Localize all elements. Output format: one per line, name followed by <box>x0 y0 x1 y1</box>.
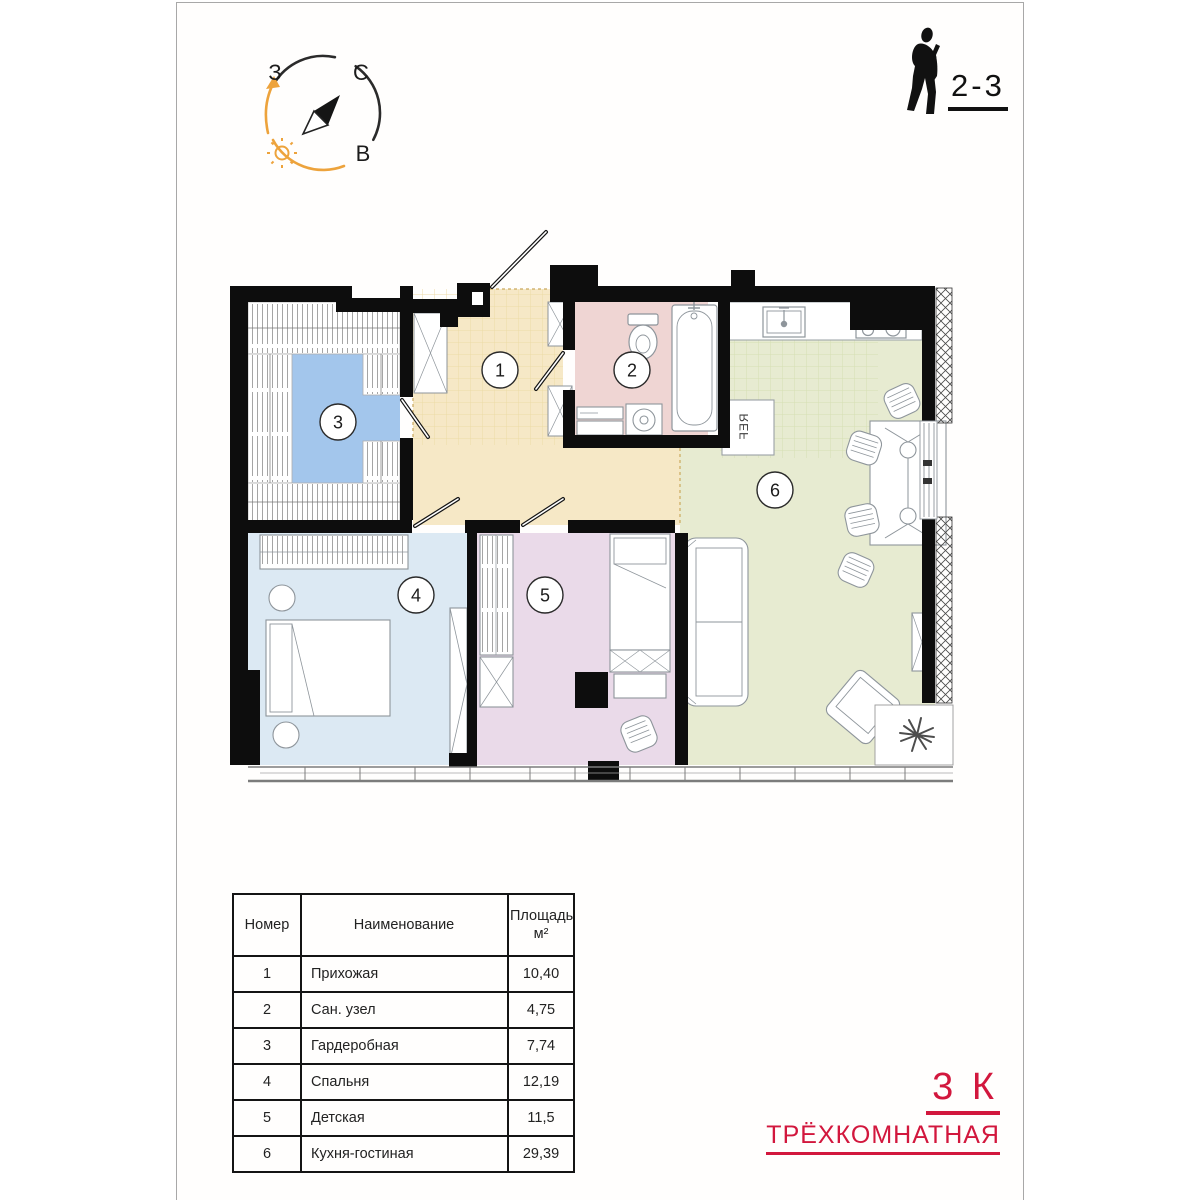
room-number-2: 2 <box>627 361 637 381</box>
compass-rose-icon: З С В <box>240 35 410 205</box>
floors-badge: 2-3 <box>948 68 1008 111</box>
cell-name: Детская <box>301 1100 508 1136</box>
cell-area: 7,74 <box>508 1028 574 1064</box>
cell-area: 12,19 <box>508 1064 574 1100</box>
cell-area: 11,5 <box>508 1100 574 1136</box>
room-number-4: 4 <box>411 586 421 606</box>
rooms-table: Номер Наименование Площадь, м² 1 Прихожа… <box>232 893 575 1173</box>
room-number-3: 3 <box>333 413 343 433</box>
nightstand <box>273 722 299 748</box>
apartment-type: 3 К ТРЁХКОМНАТНАЯ <box>766 1066 1000 1155</box>
room-number-5: 5 <box>540 586 550 606</box>
cell-area: 4,75 <box>508 992 574 1028</box>
cell-area: 29,39 <box>508 1136 574 1172</box>
floorplan-drawing: REF <box>230 225 975 795</box>
bedroom-wardrobe <box>450 608 467 760</box>
washing-machine-icon <box>577 404 662 435</box>
apartment-type-short: 3 К <box>926 1066 1000 1115</box>
header-area-line1: Площадь, <box>510 908 574 924</box>
cell-number: 6 <box>233 1136 301 1172</box>
cell-number: 3 <box>233 1028 301 1064</box>
cell-name: Кухня-гостиная <box>301 1136 508 1172</box>
cell-number: 1 <box>233 956 301 992</box>
table-row: 3 Гардеробная 7,74 <box>233 1028 574 1064</box>
sofa-icon <box>684 538 748 706</box>
bed-double-icon <box>266 620 390 716</box>
table-row: 4 Спальня 12,19 <box>233 1064 574 1100</box>
compass-label-west: З <box>268 60 281 85</box>
cell-number: 5 <box>233 1100 301 1136</box>
table-row: 5 Детская 11,5 <box>233 1100 574 1136</box>
fridge-label: REF <box>737 414 751 441</box>
balcony-corner <box>875 705 953 765</box>
compass-arc-sun <box>273 140 344 170</box>
apartment-type-full: ТРЁХКОМНАТНАЯ <box>766 1121 1000 1155</box>
cell-number: 4 <box>233 1064 301 1100</box>
cell-name: Сан. узел <box>301 992 508 1028</box>
table-row: 1 Прихожая 10,40 <box>233 956 574 992</box>
cell-name: Гардеробная <box>301 1028 508 1064</box>
person-icon <box>903 26 949 118</box>
room-number-6: 6 <box>770 481 780 501</box>
table-row: 6 Кухня-гостиная 29,39 <box>233 1136 574 1172</box>
compass-label-east: В <box>356 141 371 166</box>
kitchen-sink-icon <box>763 307 805 337</box>
header-area-line2: м² <box>534 926 549 942</box>
header-name: Наименование <box>301 894 508 956</box>
header-area: Площадь, м² <box>508 894 574 956</box>
cell-number: 2 <box>233 992 301 1028</box>
wall-notch <box>472 292 483 305</box>
cell-name: Прихожая <box>301 956 508 992</box>
window-right <box>920 421 937 519</box>
bathtub-icon <box>672 302 717 431</box>
floorplan-page: З С В 2-3 <box>0 0 1200 1200</box>
cell-name: Спальня <box>301 1064 508 1100</box>
table-row: 2 Сан. узел 4,75 <box>233 992 574 1028</box>
cell-area: 10,40 <box>508 956 574 992</box>
sun-path-arrow <box>266 84 273 133</box>
structural-column <box>575 672 608 708</box>
compass-label-north: С <box>353 60 369 85</box>
header-number: Номер <box>233 894 301 956</box>
room-number-1: 1 <box>495 361 505 381</box>
compass-arc-top <box>274 56 335 85</box>
nightstand <box>269 585 295 611</box>
table-header-row: Номер Наименование Площадь, м² <box>233 894 574 956</box>
